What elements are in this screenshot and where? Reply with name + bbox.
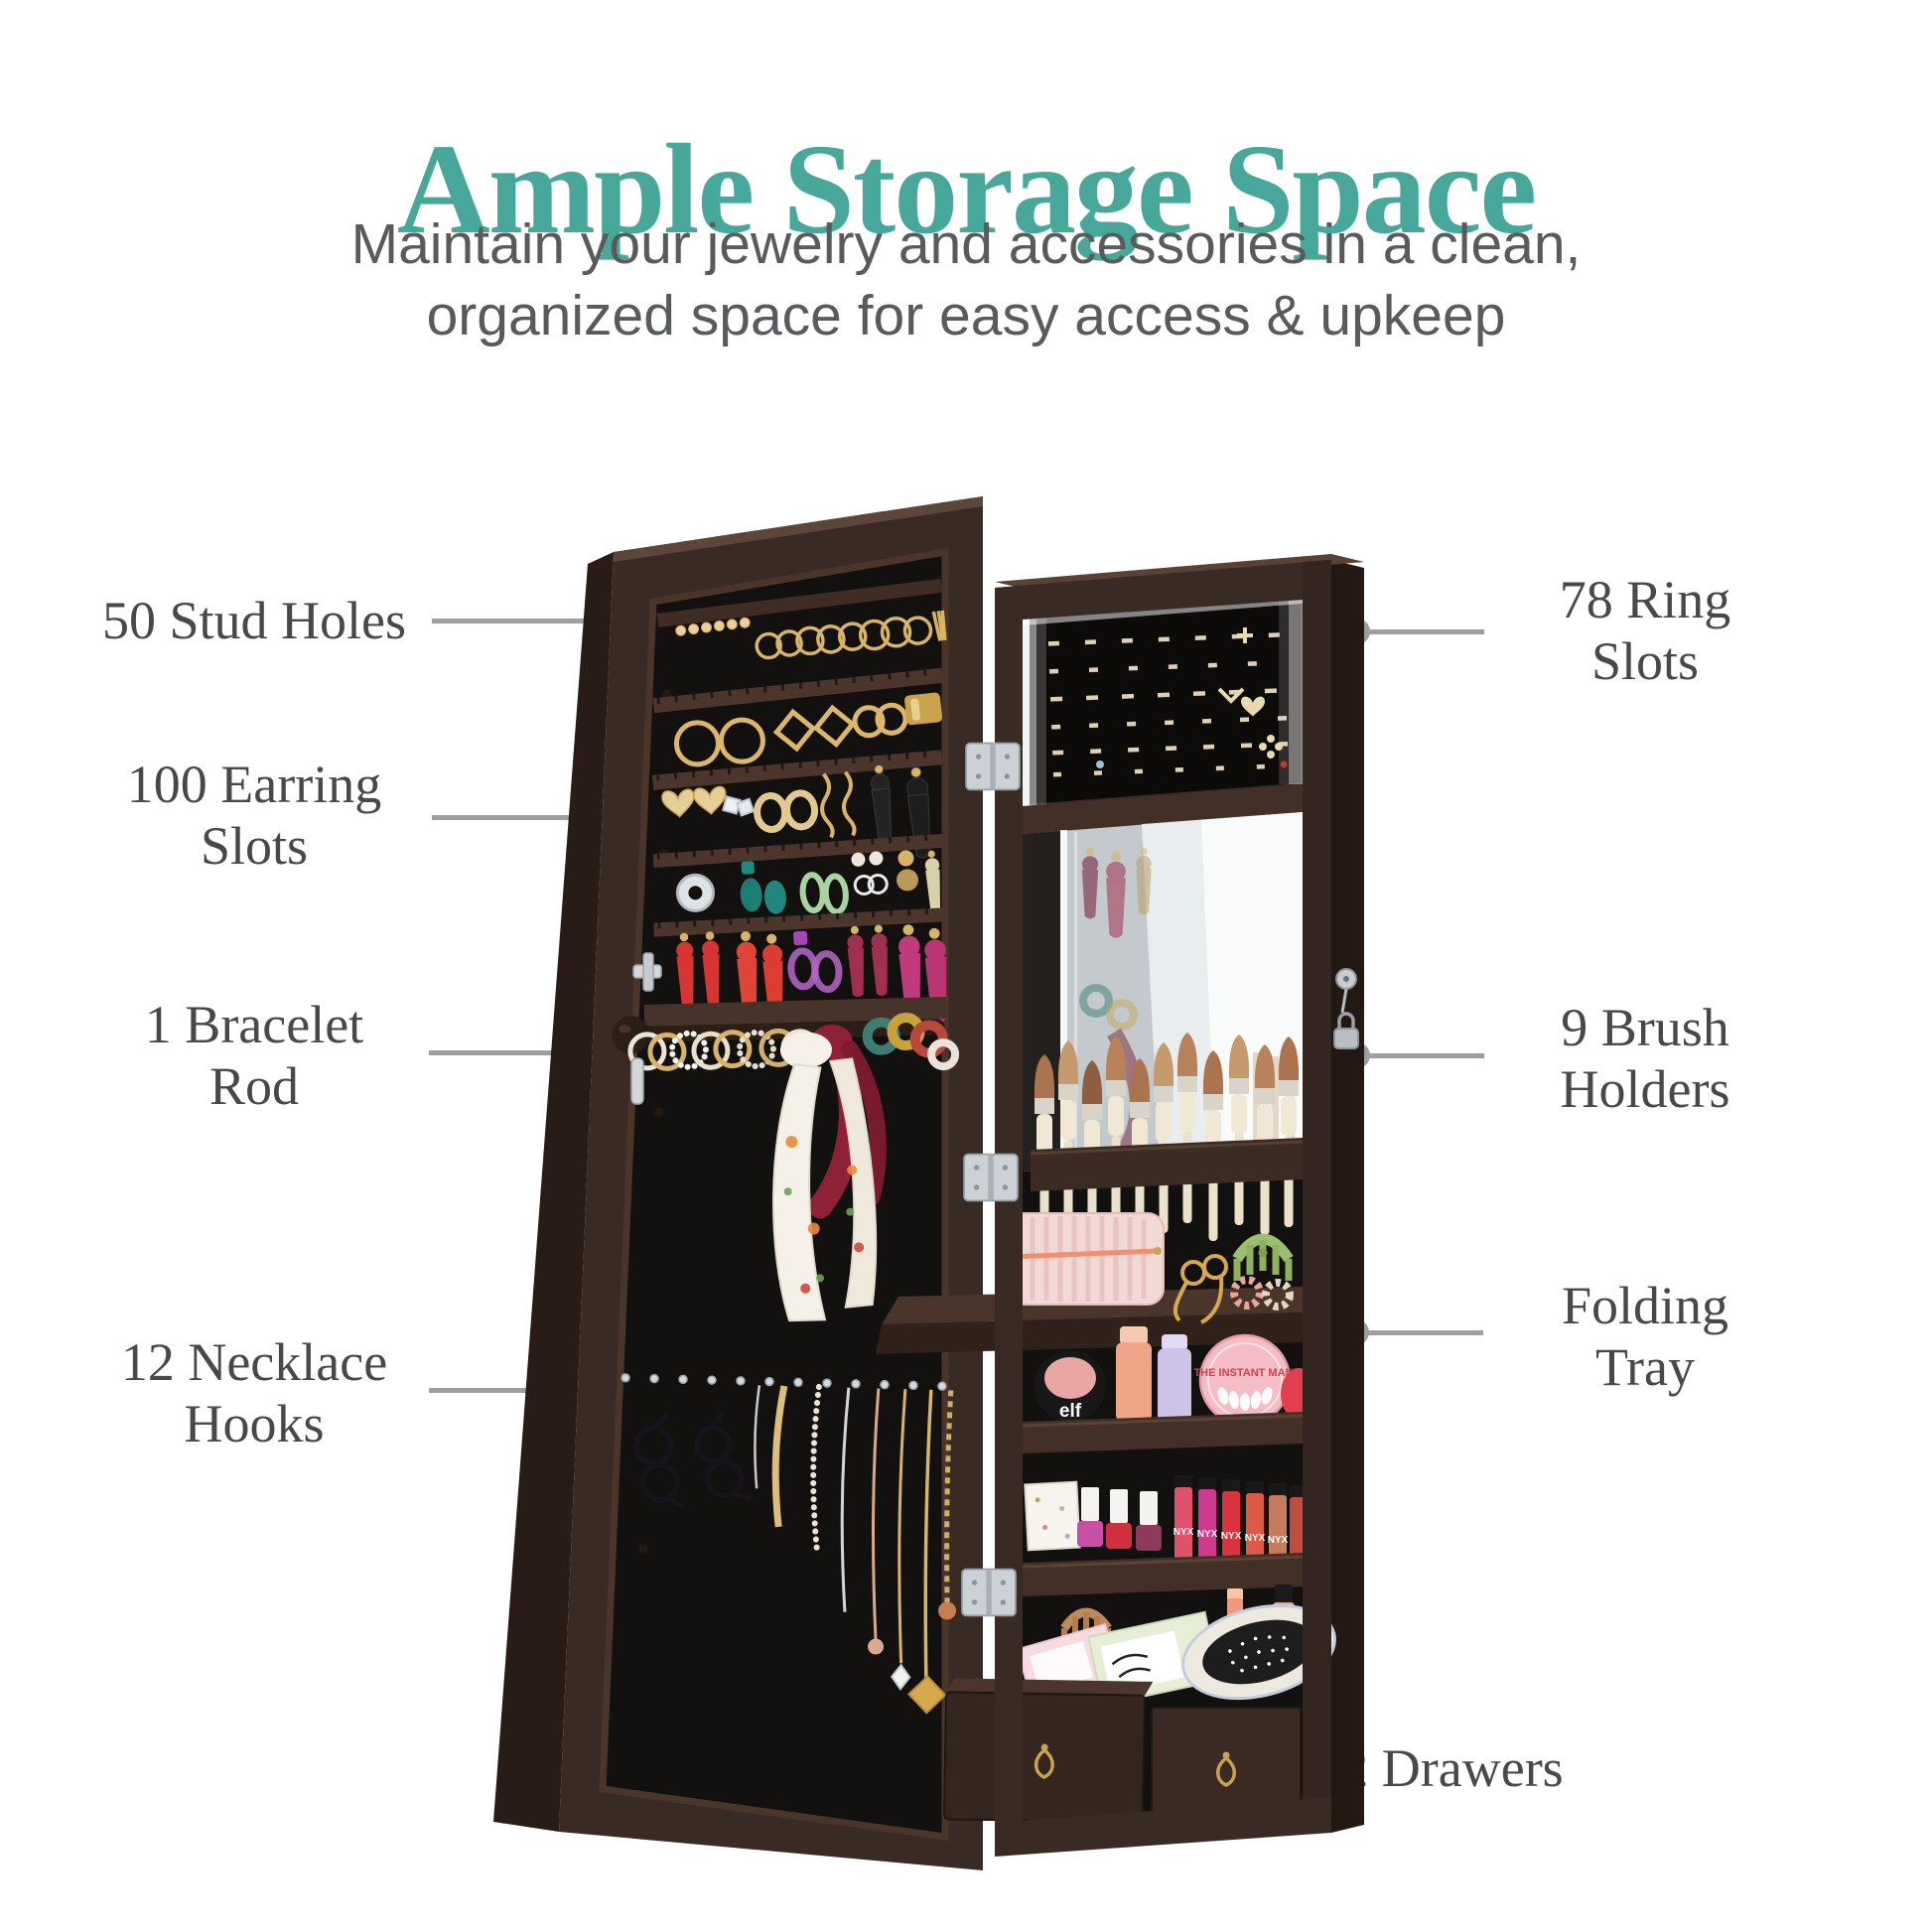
svg-text:NYX: NYX [1268, 1535, 1289, 1546]
hinge [966, 744, 1020, 790]
infographic-page: Ample Storage Space Maintain your jewelr… [0, 0, 1932, 1932]
serum-bottle [1158, 1348, 1191, 1422]
svg-text:elf: elf [1059, 1401, 1082, 1422]
svg-text:NYX: NYX [1245, 1533, 1266, 1544]
callout-stud-holes: 50 Stud Holes [56, 590, 453, 651]
blush-compact: elf [1035, 1350, 1106, 1422]
cosmetic-pouch [1005, 1213, 1164, 1305]
svg-text:NYX: NYX [1173, 1527, 1194, 1538]
callout-necklace-hooks: 12 NecklaceHooks [56, 1331, 453, 1454]
floral-box [1025, 1482, 1079, 1551]
cabinet-frame-right [1303, 560, 1331, 1831]
serum-bottle [1116, 1342, 1152, 1422]
product-photo-jewelry-armoire: elf THE INSTANT MANI [437, 427, 1430, 1886]
svg-text:THE INSTANT MANI: THE INSTANT MANI [1193, 1367, 1296, 1379]
callout-ring-slots: 78 RingSlots [1447, 569, 1844, 692]
page-subtitle: Maintain your jewelry and accessories in… [0, 208, 1932, 351]
ring-slots-panel [1023, 594, 1303, 834]
callout-folding-tray: FoldingTray [1447, 1275, 1844, 1398]
svg-text:NYX: NYX [1197, 1529, 1218, 1540]
hinge [964, 1155, 1018, 1201]
svg-text:NYX: NYX [1221, 1531, 1242, 1542]
callout-bracelet-rod: 1 BraceletRod [56, 994, 453, 1117]
callout-brush-holders: 9 BrushHolders [1447, 997, 1844, 1120]
subtitle-line-1: Maintain your jewelry and accessories in… [0, 208, 1932, 280]
drawer-left-open [944, 1678, 1153, 1823]
hinge [962, 1570, 1016, 1616]
callout-earring-slots: 100 EarringSlots [56, 754, 453, 877]
armoire-open-door [493, 496, 983, 1870]
subtitle-line-2: organized space for easy access & upkeep [0, 280, 1932, 351]
